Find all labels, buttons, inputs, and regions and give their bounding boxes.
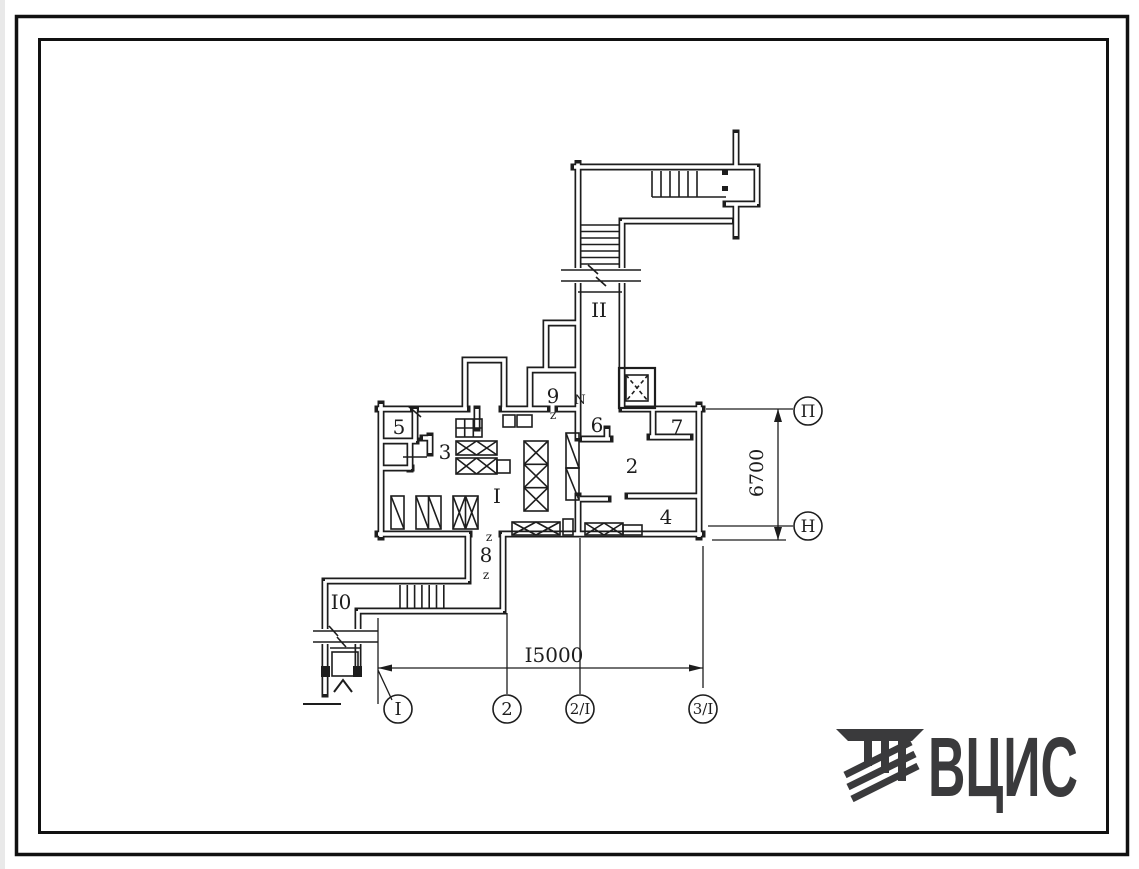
door-mark-z: z <box>483 568 489 582</box>
room-label-7: 7 <box>671 415 684 439</box>
scanned-drawing-page: I5000 6700 I 2 2/I 3/I П Н <box>0 0 1139 869</box>
axis-marker-label: Н <box>801 517 816 537</box>
door-mark-N: N <box>574 393 585 408</box>
axis-marker-label: 3/I <box>693 700 714 718</box>
stairs-corridor-10 <box>400 585 444 608</box>
axis-marker-label: I <box>394 699 401 720</box>
axis-marker-label: П <box>801 402 816 422</box>
room-label-5: 5 <box>393 415 406 439</box>
axis-marker-label: 2/I <box>570 700 591 718</box>
room-label-9: 9 <box>547 384 560 408</box>
room-label-1: I <box>493 484 501 508</box>
door-mark-z: z <box>550 408 556 422</box>
door-jamb <box>722 170 728 175</box>
room-label-10: I0 <box>331 590 352 614</box>
room-label-2: 2 <box>626 454 639 478</box>
drawing-canvas: I5000 6700 I 2 2/I 3/I П Н <box>0 0 1139 869</box>
dimension-label-horizontal: I5000 <box>525 643 584 667</box>
axis-marker-label: 2 <box>501 699 512 720</box>
door-jamb <box>722 186 728 191</box>
room-label-4: 4 <box>660 505 673 529</box>
dimension-label-vertical: 6700 <box>746 449 768 497</box>
room-label-3: 3 <box>439 440 452 464</box>
logo-text: ВЦИС <box>928 720 1078 814</box>
room-label-11: II <box>591 298 607 322</box>
stairs-corridor-11 <box>581 225 619 264</box>
room-label-8: 8 <box>480 543 493 567</box>
room-label-6: 6 <box>591 413 604 437</box>
scan-edge-artifact <box>0 0 5 869</box>
door-mark-z: z <box>486 530 492 544</box>
